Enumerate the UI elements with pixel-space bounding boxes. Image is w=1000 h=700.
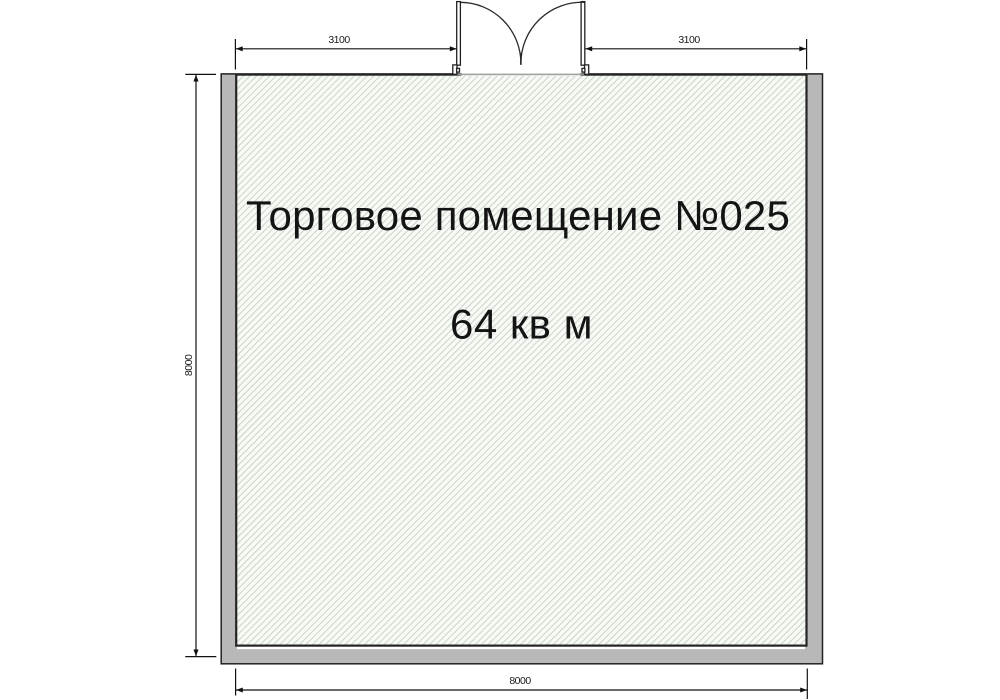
svg-text:8000: 8000	[509, 675, 531, 687]
svg-text:8000: 8000	[183, 354, 195, 376]
svg-text:3100: 3100	[328, 34, 350, 46]
svg-text:3100: 3100	[678, 34, 700, 46]
svg-text:64 кв м: 64 кв м	[450, 301, 593, 348]
svg-text:Торговое помещение №025: Торговое помещение №025	[246, 192, 790, 239]
